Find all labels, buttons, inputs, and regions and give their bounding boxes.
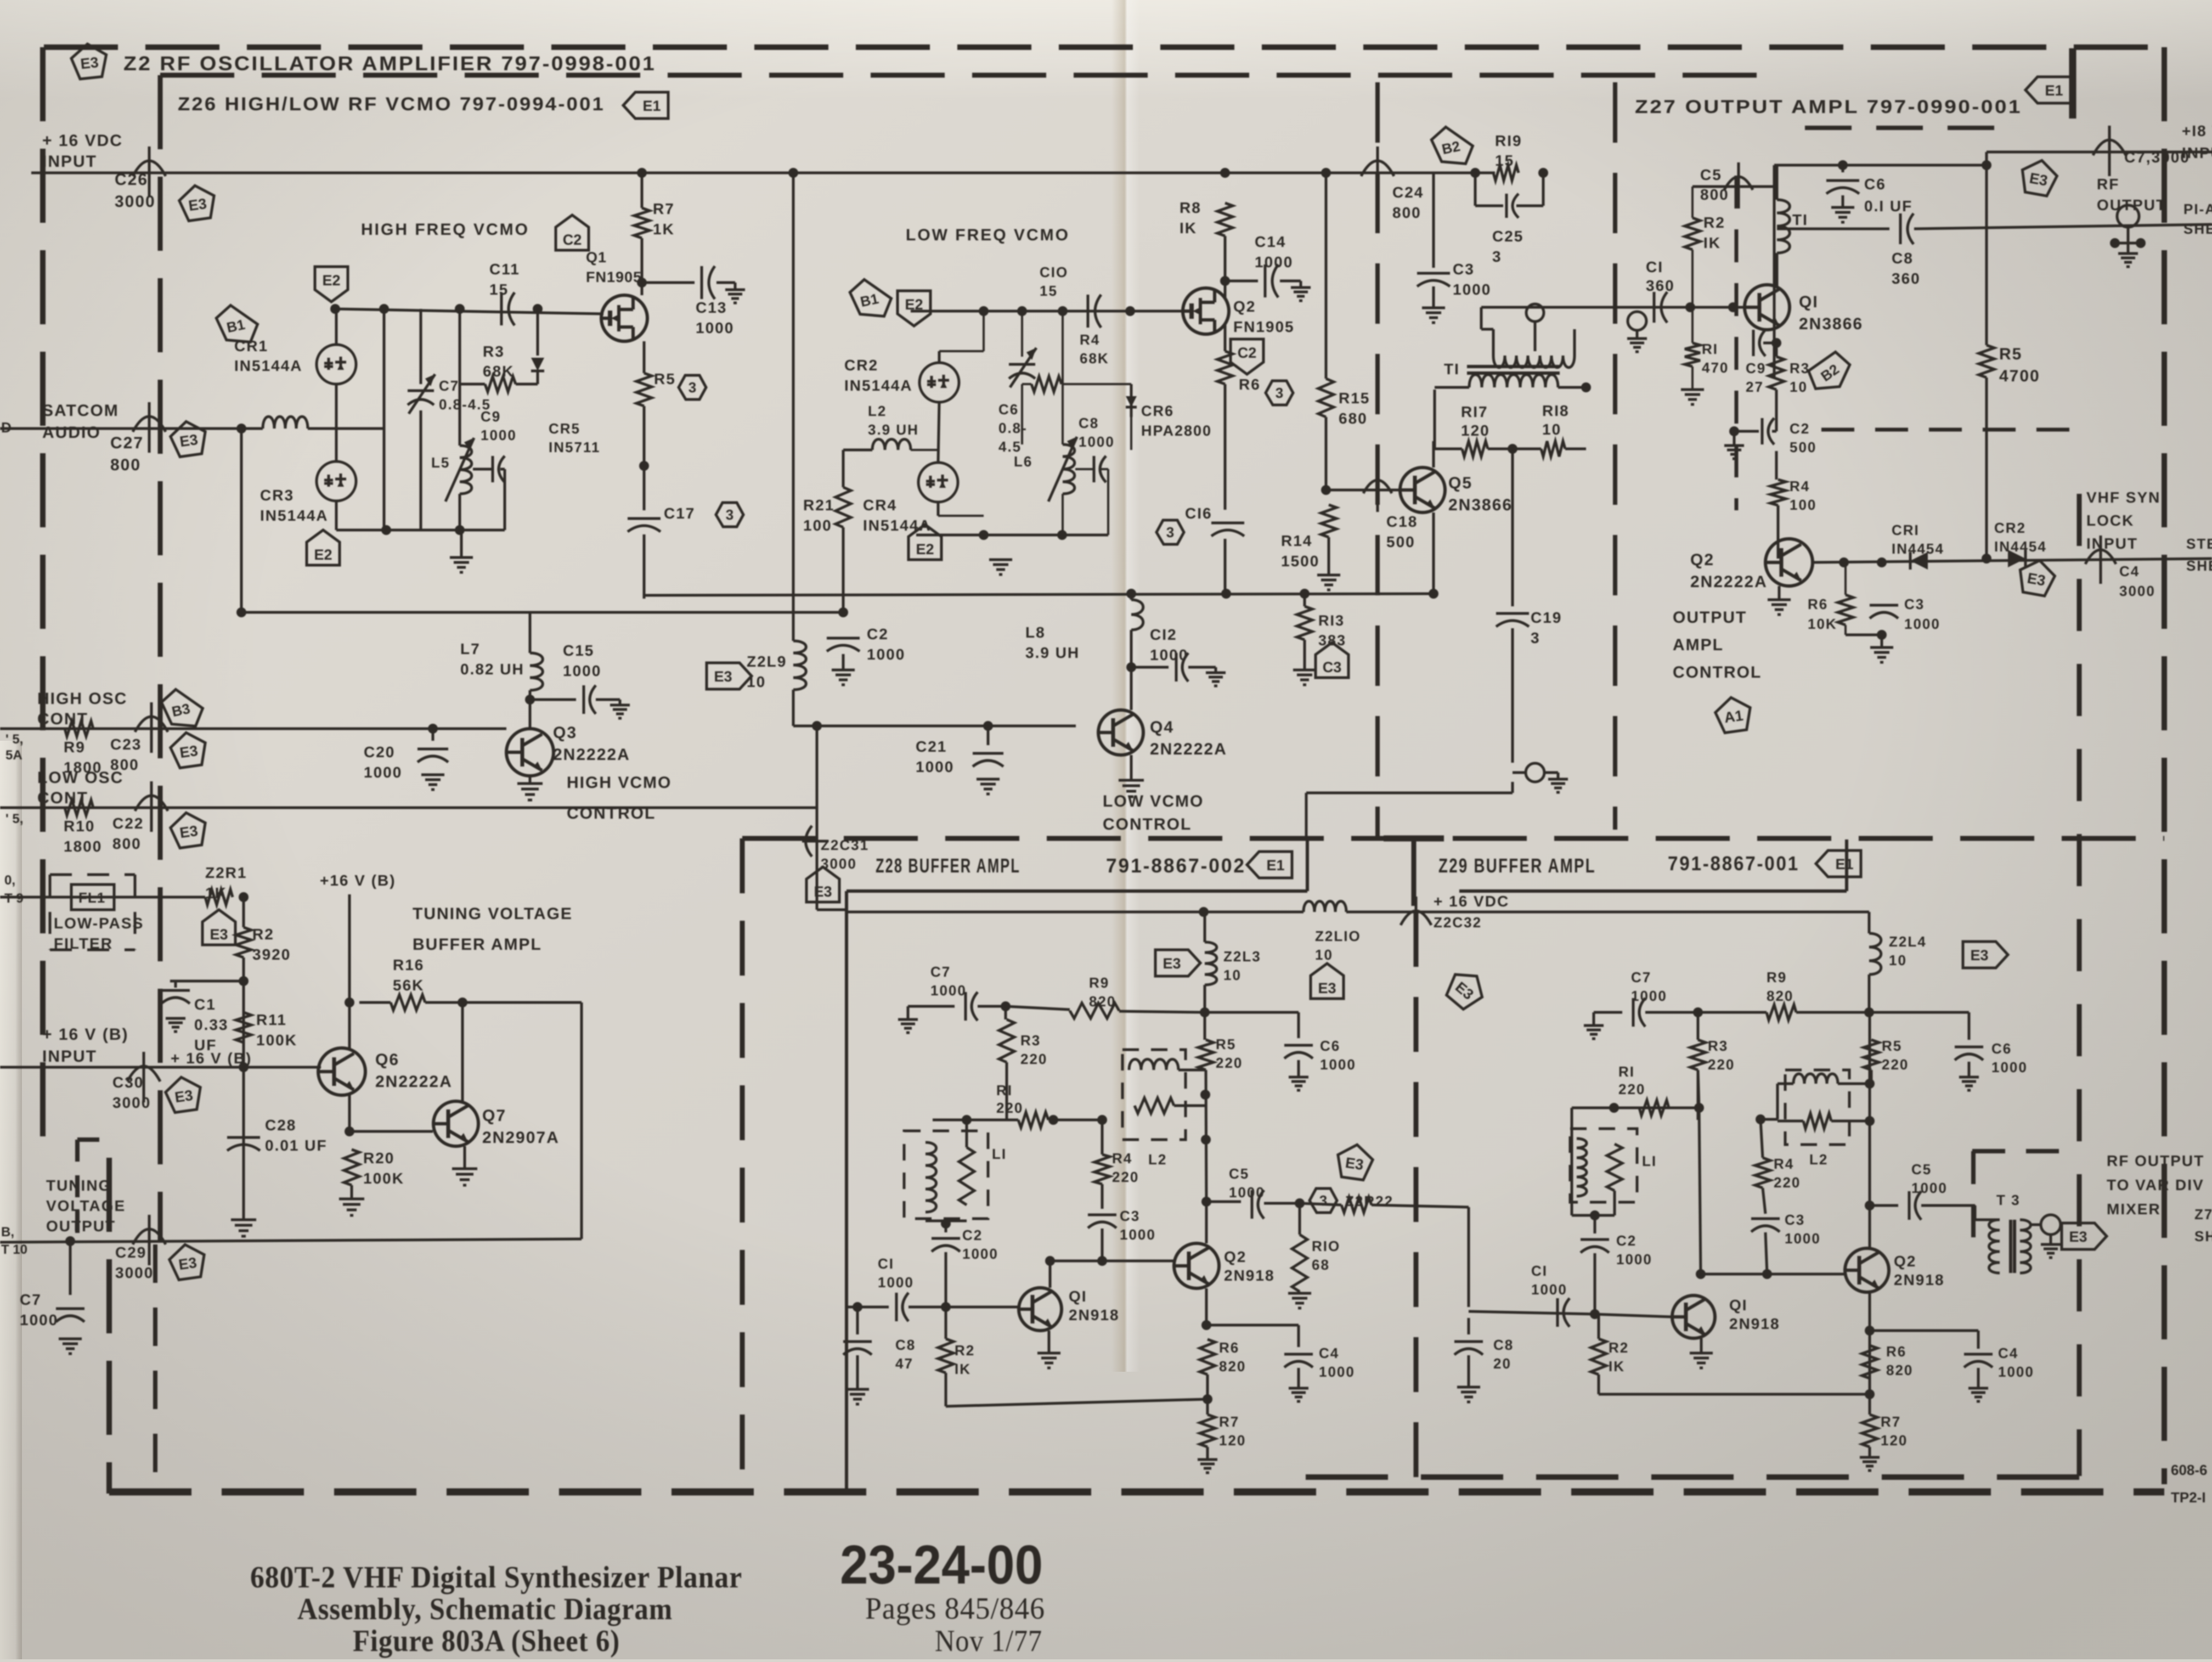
svg-text:E3: E3 (210, 926, 228, 943)
svg-text:E2: E2 (322, 272, 340, 289)
svg-text:C7,3000: C7,3000 (2124, 149, 2190, 166)
svg-text:0.33: 0.33 (194, 1016, 229, 1033)
svg-text:1000: 1000 (1255, 253, 1293, 271)
svg-text:Z2R1: Z2R1 (205, 864, 247, 881)
svg-text:C4: C4 (2119, 563, 2140, 579)
svg-text:15: 15 (1040, 283, 1058, 299)
svg-text:TO VAR DIV: TO VAR DIV (2107, 1176, 2204, 1193)
svg-text:1000: 1000 (916, 758, 954, 775)
svg-text:Z2C31: Z2C31 (821, 837, 869, 853)
svg-text:E3: E3 (80, 54, 99, 72)
svg-text:2N2222A: 2N2222A (1150, 740, 1227, 758)
svg-text:C18: C18 (1386, 513, 1418, 530)
svg-text:C23: C23 (110, 736, 142, 753)
svg-text:1000: 1000 (1079, 433, 1115, 450)
svg-text:IN4454: IN4454 (1892, 540, 1944, 557)
svg-text:R21: R21 (803, 497, 834, 514)
svg-text:1000: 1000 (930, 982, 967, 999)
svg-text:23-24-00: 23-24-00 (840, 1534, 1043, 1596)
svg-text:3.9 UH: 3.9 UH (868, 421, 919, 438)
svg-text:3000: 3000 (115, 1264, 154, 1281)
svg-text:C8: C8 (895, 1337, 916, 1353)
svg-text:R4: R4 (1774, 1156, 1794, 1172)
svg-text:RI: RI (996, 1082, 1013, 1098)
svg-text:E3: E3 (814, 883, 832, 900)
svg-text:E3: E3 (2069, 1229, 2087, 1245)
svg-text:E1: E1 (1266, 857, 1284, 874)
svg-text:C19: C19 (1531, 609, 1562, 626)
svg-text:360: 360 (1646, 277, 1675, 294)
svg-text:IK: IK (1180, 219, 1197, 236)
svg-text:R7: R7 (653, 200, 675, 217)
svg-text:R6: R6 (1808, 596, 1828, 612)
svg-text:LOW OSC: LOW OSC (37, 769, 123, 787)
svg-text:IK: IK (955, 1361, 971, 1377)
svg-text:2N2222A: 2N2222A (1690, 573, 1768, 591)
svg-text:C13: C13 (696, 299, 727, 316)
svg-text:1000: 1000 (878, 1274, 914, 1291)
svg-text:Q2: Q2 (1690, 551, 1714, 569)
svg-text:68K: 68K (1080, 350, 1109, 367)
svg-text:Q6: Q6 (375, 1051, 399, 1069)
svg-text:Z2L3: Z2L3 (1223, 948, 1261, 965)
svg-text:+I8 V: +I8 V (2182, 122, 2212, 139)
svg-text:IK: IK (1609, 1358, 1625, 1374)
svg-text:C2: C2 (867, 626, 889, 643)
svg-text:10K: 10K (1808, 616, 1837, 632)
svg-text:IN5144A: IN5144A (234, 357, 303, 374)
svg-text:IN5144A: IN5144A (863, 517, 932, 534)
svg-text:1000: 1000 (1229, 1184, 1265, 1201)
svg-text:R4: R4 (1790, 478, 1810, 494)
svg-text:820: 820 (1089, 993, 1116, 1010)
svg-text:E1: E1 (2045, 82, 2063, 99)
svg-text:1000: 1000 (962, 1246, 998, 1262)
svg-text:RI: RI (1618, 1063, 1635, 1080)
svg-text:Z26 HIGH/LOW RF VCMO 797-0994-: Z26 HIGH/LOW RF VCMO 797-0994-001 (178, 94, 605, 115)
svg-text:220: 220 (1708, 1056, 1735, 1073)
svg-text:791-8867-002: 791-8867-002 (1106, 854, 1246, 877)
svg-text:R3: R3 (1020, 1032, 1041, 1049)
svg-text:1000: 1000 (696, 319, 734, 336)
svg-text:3: 3 (1319, 1192, 1327, 1209)
svg-text:1000: 1000 (364, 764, 402, 781)
svg-text:QI: QI (1729, 1297, 1748, 1314)
svg-text:E3: E3 (174, 1087, 194, 1106)
svg-text:15: 15 (489, 281, 509, 298)
svg-text:Assembly, Schematic Diagram: Assembly, Schematic Diagram (297, 1592, 673, 1626)
svg-text:R3: R3 (483, 343, 505, 360)
svg-text:Z2 RF OSCILLATOR AMPLIFIER 797: Z2 RF OSCILLATOR AMPLIFIER 797-0998-001 (123, 52, 656, 75)
svg-text:C6: C6 (998, 401, 1019, 418)
svg-text:LI: LI (1642, 1153, 1657, 1169)
svg-text:E2: E2 (916, 541, 934, 557)
svg-text:IN5144A: IN5144A (260, 507, 329, 524)
svg-text:SHE: SHE (2183, 221, 2212, 237)
svg-text:TUNING VOLTAGE: TUNING VOLTAGE (413, 905, 573, 923)
svg-text:1000: 1000 (1911, 1180, 1948, 1196)
svg-text:820: 820 (1886, 1362, 1913, 1378)
svg-text:680: 680 (1339, 410, 1368, 427)
svg-text:Z29 BUFFER AMPL: Z29 BUFFER AMPL (1438, 854, 1596, 877)
svg-text:+ 16 V (B): + 16 V (B) (42, 1026, 129, 1044)
svg-text:C6: C6 (1991, 1040, 2012, 1057)
svg-text:47: 47 (895, 1355, 913, 1372)
svg-text:A1: A1 (1723, 707, 1744, 726)
svg-text:R14: R14 (1281, 532, 1312, 549)
svg-text:TP2-I: TP2-I (2171, 1489, 2206, 1506)
svg-text:10: 10 (1315, 947, 1333, 963)
svg-text:1000: 1000 (1531, 1281, 1567, 1298)
svg-text:2N3866: 2N3866 (1448, 496, 1513, 514)
svg-text:RI8: RI8 (1542, 402, 1570, 419)
svg-text:R7: R7 (1881, 1413, 1901, 1430)
svg-text:IK: IK (1703, 234, 1721, 251)
svg-text:C11: C11 (489, 261, 520, 278)
svg-text:FL1: FL1 (78, 889, 105, 906)
svg-text:E3: E3 (1344, 1154, 1364, 1173)
svg-text:100: 100 (1790, 497, 1816, 513)
svg-text:R7: R7 (1219, 1413, 1239, 1430)
svg-text:1800: 1800 (64, 838, 102, 855)
svg-text:C17: C17 (664, 505, 695, 522)
svg-text:C6: C6 (1864, 176, 1886, 193)
svg-text:2N918: 2N918 (1069, 1306, 1120, 1323)
svg-text:INPUT: INPUT (2086, 535, 2138, 552)
svg-text:Nov 1/77: Nov 1/77 (935, 1624, 1042, 1658)
svg-text:LOW VCMO: LOW VCMO (1103, 792, 1204, 810)
svg-text:3000: 3000 (112, 1094, 151, 1111)
svg-text:C22: C22 (112, 815, 144, 832)
svg-text:1000: 1000 (1904, 616, 1940, 632)
svg-text:T 10: T 10 (1, 1242, 27, 1257)
svg-text:C26: C26 (115, 171, 148, 189)
svg-text:C7: C7 (20, 1291, 42, 1308)
svg-text:VHF SYN: VHF SYN (2086, 489, 2160, 506)
svg-text:C30: C30 (112, 1074, 144, 1091)
svg-text:4.5: 4.5 (998, 438, 1022, 455)
svg-text:R6: R6 (1239, 376, 1261, 393)
svg-text:3: 3 (689, 379, 696, 396)
svg-text:C15: C15 (563, 642, 594, 659)
svg-text:100: 100 (803, 517, 832, 534)
svg-text:E3: E3 (1970, 947, 1988, 964)
svg-text:608-6: 608-6 (2171, 1462, 2208, 1478)
svg-text:800: 800 (112, 835, 142, 852)
svg-text:OUTPUT: OUTPUT (46, 1218, 116, 1235)
svg-text:C24: C24 (1392, 184, 1424, 201)
svg-text:CRI: CRI (1892, 522, 1920, 538)
svg-text:CI2: CI2 (1150, 626, 1177, 643)
svg-text:120: 120 (1881, 1432, 1908, 1449)
svg-text:C9: C9 (481, 408, 501, 425)
svg-text:SHE: SHE (2186, 557, 2212, 574)
svg-text:470: 470 (1702, 359, 1729, 376)
svg-text:AUDIO: AUDIO (42, 424, 101, 442)
svg-text:2N918: 2N918 (1729, 1315, 1780, 1332)
svg-text:1000: 1000 (1616, 1251, 1652, 1267)
svg-text:1000: 1000 (1631, 988, 1667, 1004)
svg-text:CI: CI (1646, 258, 1663, 275)
svg-text:Q5: Q5 (1448, 474, 1472, 492)
svg-text:E3: E3 (1318, 980, 1336, 996)
svg-text:R11: R11 (256, 1011, 287, 1028)
svg-text:3: 3 (726, 506, 733, 523)
svg-text:R3: R3 (1790, 360, 1810, 376)
svg-text:Q7: Q7 (482, 1107, 506, 1125)
svg-text:R4: R4 (1112, 1150, 1132, 1167)
svg-text:L8: L8 (1025, 624, 1046, 641)
svg-text:120: 120 (1219, 1432, 1246, 1449)
svg-text:T 3: T 3 (1996, 1192, 2021, 1208)
svg-text:4700: 4700 (1999, 367, 2040, 385)
svg-text:C14: C14 (1255, 233, 1286, 250)
svg-text:RI7: RI7 (1461, 403, 1488, 420)
svg-text:2N918: 2N918 (1224, 1267, 1275, 1284)
svg-text:3: 3 (1492, 248, 1502, 265)
svg-text:E3: E3 (179, 431, 199, 450)
svg-text:R3: R3 (1708, 1038, 1728, 1054)
svg-text:OUTPUT: OUTPUT (1673, 609, 1747, 627)
svg-text:1000: 1000 (1998, 1364, 2034, 1380)
svg-text:+16 V (B): +16 V (B) (320, 872, 396, 889)
svg-text:E3: E3 (179, 822, 199, 841)
svg-text:E3: E3 (188, 195, 208, 214)
svg-text:R9: R9 (1089, 974, 1109, 991)
svg-text:B,: B, (1, 1225, 14, 1240)
svg-text:791-8867-001: 791-8867-001 (1668, 852, 1799, 875)
svg-text:C8: C8 (1892, 250, 1914, 267)
svg-text:VOLTAGE: VOLTAGE (46, 1197, 126, 1214)
svg-text:3: 3 (1531, 629, 1541, 646)
svg-text:C8: C8 (1079, 415, 1099, 431)
svg-text:C3: C3 (1323, 659, 1342, 675)
svg-text:STE: STE (2186, 536, 2212, 552)
svg-text:R6: R6 (1219, 1339, 1239, 1356)
svg-text:C21: C21 (916, 738, 947, 755)
svg-text:TI: TI (1444, 360, 1460, 378)
svg-text:RI3: RI3 (1318, 612, 1345, 629)
svg-text:Q2: Q2 (1894, 1253, 1916, 1270)
svg-text:Z2L9: Z2L9 (747, 653, 787, 670)
svg-text:R2: R2 (1703, 214, 1725, 231)
svg-text:AMPL: AMPL (1673, 636, 1724, 654)
svg-text:0.01 UF: 0.01 UF (265, 1137, 328, 1154)
svg-text:QI: QI (1069, 1288, 1087, 1305)
svg-text:C25: C25 (1492, 228, 1523, 245)
svg-text:C7: C7 (930, 964, 951, 980)
svg-text:C4: C4 (1998, 1345, 2018, 1361)
svg-text:TUNING: TUNING (46, 1177, 111, 1194)
svg-text:C7: C7 (439, 378, 459, 394)
svg-text:CI: CI (1531, 1263, 1548, 1279)
svg-text:C28: C28 (265, 1117, 296, 1134)
svg-text:TI: TI (1792, 211, 1808, 228)
svg-text:68K: 68K (483, 363, 514, 380)
svg-text:220: 220 (1020, 1051, 1047, 1067)
svg-text:QI: QI (1799, 293, 1819, 311)
svg-text:R9: R9 (64, 739, 86, 756)
svg-text:Z27 OUTPUT AMPL 797-0990-001: Z27 OUTPUT AMPL 797-0990-001 (1635, 97, 2022, 117)
svg-text:CONTROL: CONTROL (1673, 663, 1762, 681)
svg-text:R6: R6 (1886, 1343, 1906, 1360)
svg-text:3920: 3920 (252, 946, 291, 963)
svg-text:C2: C2 (962, 1227, 983, 1243)
svg-text:10: 10 (747, 673, 766, 690)
svg-text:RF: RF (2097, 176, 2119, 193)
svg-text:Z2C32: Z2C32 (1434, 914, 1482, 931)
svg-text:R5: R5 (1216, 1036, 1236, 1052)
svg-text:15: 15 (1495, 152, 1514, 169)
svg-text:383: 383 (1318, 632, 1346, 649)
svg-text:56K: 56K (393, 977, 424, 994)
svg-text:CR3: CR3 (260, 487, 294, 504)
svg-text:IN5711: IN5711 (549, 439, 600, 455)
svg-text:' 5,: ' 5, (5, 732, 23, 747)
svg-text:E3: E3 (179, 742, 199, 761)
svg-text:+ 16 V (B): + 16 V (B) (171, 1050, 252, 1067)
svg-text:L7: L7 (460, 640, 481, 657)
svg-text:120: 120 (1461, 422, 1490, 439)
svg-text:L5: L5 (431, 454, 450, 471)
svg-text:RI: RI (1702, 341, 1718, 357)
svg-text:10: 10 (1542, 421, 1561, 438)
svg-text:Z28 BUFFER AMPL: Z28 BUFFER AMPL (876, 854, 1020, 877)
svg-text:R15: R15 (1339, 390, 1370, 407)
svg-text:5A: 5A (5, 748, 22, 763)
svg-text:R20: R20 (363, 1150, 394, 1167)
svg-text:100K: 100K (256, 1032, 297, 1049)
svg-text:27: 27 (1746, 379, 1764, 395)
svg-text:LOW FREQ VCMO: LOW FREQ VCMO (906, 226, 1070, 244)
svg-text:3000: 3000 (2119, 583, 2155, 599)
svg-text:Q2: Q2 (1224, 1248, 1246, 1265)
svg-text:IN5144A: IN5144A (844, 377, 913, 394)
svg-text:C2: C2 (1616, 1232, 1637, 1249)
svg-text:RF OUTPUT: RF OUTPUT (2107, 1152, 2204, 1169)
svg-text:R2: R2 (252, 926, 274, 943)
svg-text:Z2LIO: Z2LIO (1315, 928, 1361, 944)
svg-text:R4: R4 (1080, 331, 1100, 348)
svg-text:L2: L2 (1148, 1151, 1167, 1168)
svg-text:R10: R10 (64, 818, 95, 835)
svg-text:C9: C9 (1746, 360, 1766, 376)
svg-text:2N3866: 2N3866 (1799, 315, 1863, 333)
svg-text:3000: 3000 (115, 193, 156, 211)
svg-text:C4: C4 (1319, 1345, 1339, 1361)
svg-text:C5: C5 (1911, 1161, 1932, 1178)
svg-text:Q2: Q2 (1233, 298, 1256, 315)
svg-text:Z2R22: Z2R22 (1345, 1193, 1393, 1209)
svg-text:CONTROL: CONTROL (1103, 815, 1192, 833)
svg-text:IN4454: IN4454 (1994, 538, 2047, 555)
svg-text:+ 16 VDC: + 16 VDC (42, 132, 123, 150)
svg-text:E3: E3 (178, 1254, 198, 1273)
svg-text:68: 68 (1312, 1257, 1330, 1273)
svg-text:' 5,: ' 5, (5, 812, 23, 826)
svg-text:1000: 1000 (1785, 1230, 1821, 1247)
svg-text:E2: E2 (905, 296, 923, 313)
svg-text:500: 500 (1386, 533, 1415, 550)
svg-text:Z7J2: Z7J2 (2194, 1206, 2212, 1222)
svg-text:C2: C2 (563, 232, 582, 248)
svg-text:CR4: CR4 (863, 497, 897, 514)
svg-text:1000: 1000 (1453, 281, 1491, 298)
svg-text:R8: R8 (1180, 199, 1201, 216)
svg-text:R9: R9 (1767, 969, 1787, 985)
svg-text:3: 3 (1276, 385, 1283, 401)
svg-text:800: 800 (110, 456, 141, 474)
svg-text:R16: R16 (393, 956, 424, 973)
svg-text:C5: C5 (1229, 1165, 1249, 1182)
svg-text:Z2L4: Z2L4 (1889, 933, 1927, 950)
svg-text:E2: E2 (314, 547, 332, 563)
svg-text:C3: C3 (1785, 1212, 1805, 1228)
svg-text:L2: L2 (868, 403, 887, 419)
svg-text:1K: 1K (653, 221, 675, 238)
svg-text:0.I UF: 0.I UF (1864, 198, 1912, 215)
svg-text:Q3: Q3 (553, 724, 577, 742)
svg-text:C5: C5 (1700, 166, 1722, 183)
svg-text:800: 800 (1700, 186, 1729, 203)
svg-text:CR5: CR5 (549, 420, 580, 437)
svg-text:2N2907A: 2N2907A (482, 1129, 560, 1147)
svg-text:100K: 100K (363, 1170, 404, 1187)
svg-text:3.9 UH: 3.9 UH (1025, 644, 1080, 661)
svg-text:R5: R5 (1882, 1038, 1902, 1054)
svg-text:C1: C1 (194, 996, 216, 1013)
svg-text:SATCOM: SATCOM (42, 402, 119, 420)
svg-text:220: 220 (1618, 1081, 1645, 1097)
svg-text:CI: CI (878, 1255, 894, 1272)
svg-text:BUFFER AMPL: BUFFER AMPL (413, 936, 542, 954)
svg-text:3: 3 (1166, 524, 1174, 540)
svg-text:C2: C2 (1790, 420, 1810, 437)
svg-text:HIGH VCMO: HIGH VCMO (567, 774, 672, 792)
svg-text:1000: 1000 (1320, 1056, 1356, 1073)
svg-text:RIO: RIO (1312, 1238, 1340, 1254)
svg-text:RI9: RI9 (1495, 132, 1522, 149)
svg-text:CONTROL: CONTROL (567, 804, 656, 822)
svg-text:INPUT: INPUT (42, 1047, 97, 1066)
svg-text:C27: C27 (110, 434, 144, 452)
svg-text:HIGH FREQ VCMO: HIGH FREQ VCMO (361, 221, 529, 239)
svg-text:HPA2800: HPA2800 (1141, 422, 1212, 439)
svg-text:10: 10 (1223, 967, 1242, 983)
svg-text:2N2222A: 2N2222A (553, 746, 630, 764)
svg-text:680T-2 VHF Digital Synthesizer: 680T-2 VHF Digital Synthesizer Planar (250, 1560, 742, 1595)
svg-text:220: 220 (996, 1100, 1023, 1116)
svg-text:C2: C2 (1238, 345, 1257, 361)
svg-text:MIXER: MIXER (2107, 1201, 2161, 1218)
svg-text:CI6: CI6 (1185, 505, 1212, 522)
svg-text:Q4: Q4 (1150, 718, 1174, 736)
svg-text:10: 10 (1889, 952, 1907, 968)
svg-text:C3: C3 (1904, 596, 1925, 612)
svg-text:220: 220 (1112, 1169, 1139, 1185)
svg-text:E1: E1 (642, 98, 661, 114)
svg-text:T 9: T 9 (4, 891, 24, 906)
svg-text:1000: 1000 (867, 646, 905, 663)
svg-text:HIGH OSC: HIGH OSC (37, 690, 127, 708)
svg-text:CR2: CR2 (1994, 520, 2026, 536)
svg-text:LI: LI (992, 1146, 1007, 1162)
svg-text:1500: 1500 (1281, 553, 1319, 570)
svg-text:CR2: CR2 (844, 357, 878, 374)
svg-text:C6: C6 (1320, 1038, 1340, 1054)
svg-text:SHEE: SHEE (2194, 1228, 2212, 1244)
svg-text:R2: R2 (955, 1342, 975, 1359)
